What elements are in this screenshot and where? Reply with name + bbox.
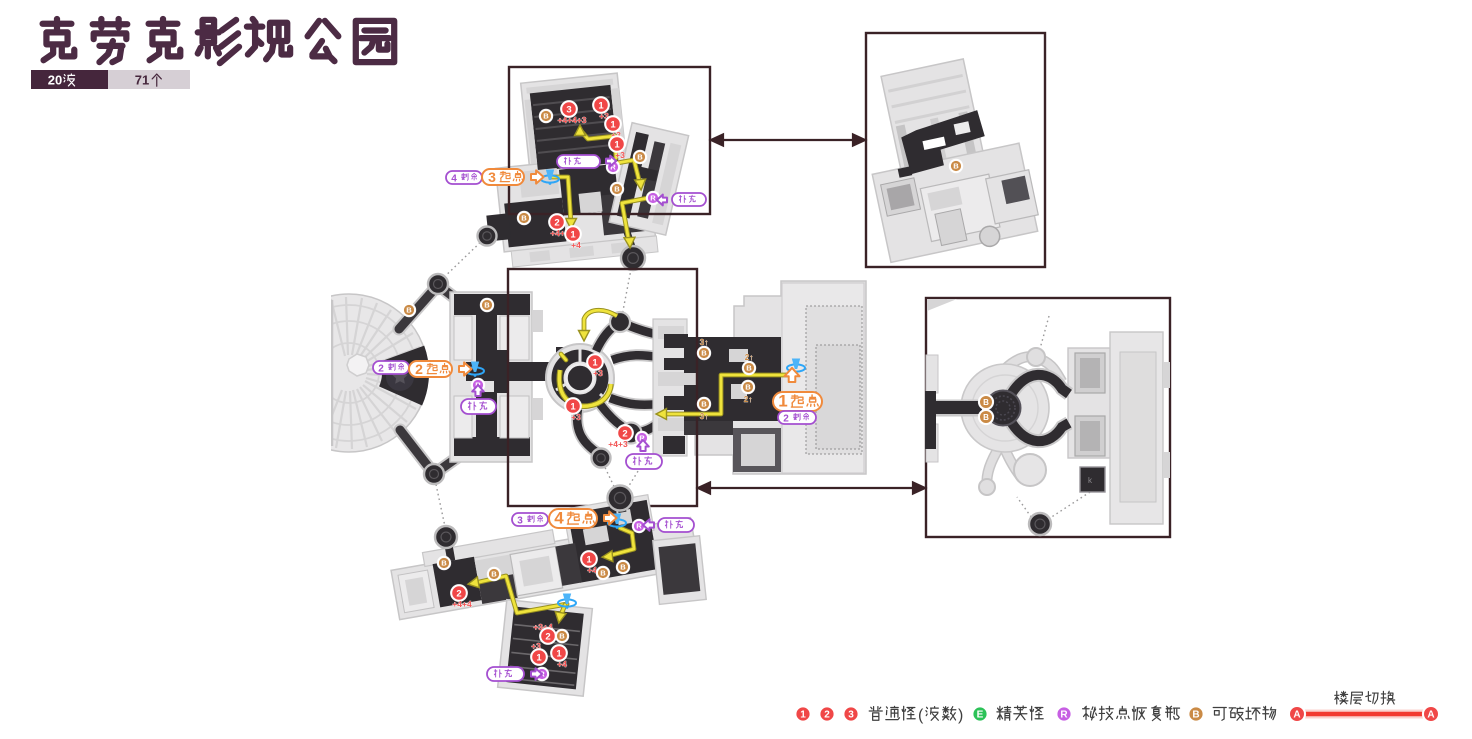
svg-text:1: 1 (570, 229, 576, 240)
svg-text:B: B (620, 563, 626, 572)
svg-text:1: 1 (556, 648, 562, 659)
svg-text:R: R (1060, 710, 1068, 721)
svg-text:A: A (1293, 710, 1300, 721)
svg-text:B: B (701, 400, 707, 409)
svg-text:B: B (484, 301, 490, 310)
svg-text:+4: +4 (557, 659, 567, 669)
svg-text:4: 4 (554, 509, 564, 528)
svg-text:3: 3 (488, 169, 496, 185)
svg-text:+4+4: +4+4 (452, 599, 472, 609)
svg-text:B: B (491, 570, 497, 579)
svg-text:+3: +3 (615, 150, 625, 160)
svg-text:R: R (650, 194, 656, 203)
svg-text:B: B (543, 112, 549, 121)
svg-text:4: 4 (451, 173, 457, 184)
svg-text:2: 2 (378, 363, 384, 374)
svg-text:B: B (701, 349, 707, 358)
svg-text:B: B (614, 185, 620, 194)
svg-text:2: 2 (622, 428, 627, 439)
svg-text:3: 3 (848, 710, 854, 721)
svg-text:R: R (636, 522, 642, 531)
svg-text:+4+4+3: +4+4+3 (557, 115, 586, 125)
svg-text:2: 2 (554, 217, 559, 228)
svg-text:+4+3: +4+3 (608, 439, 628, 449)
svg-text:1: 1 (598, 100, 604, 111)
svg-text:1: 1 (778, 392, 787, 411)
svg-text:+3: +3 (571, 412, 581, 422)
svg-text:B: B (559, 632, 565, 641)
svg-text:B: B (746, 364, 752, 373)
svg-text:2↑: 2↑ (745, 353, 753, 362)
svg-text:1: 1 (614, 139, 620, 150)
svg-text:2: 2 (783, 413, 789, 424)
svg-text:71: 71 (135, 73, 149, 88)
svg-text:B: B (745, 383, 751, 392)
svg-text:(: ( (918, 707, 924, 724)
svg-text:2: 2 (415, 361, 423, 377)
svg-text:2↑: 2↑ (744, 395, 752, 404)
svg-text:B: B (441, 559, 447, 568)
svg-text:1: 1 (570, 401, 576, 412)
svg-text:3: 3 (517, 515, 523, 526)
svg-text:2: 2 (545, 631, 550, 642)
svg-text:1: 1 (800, 710, 806, 721)
svg-text:1: 1 (536, 652, 542, 663)
svg-text:1: 1 (610, 119, 616, 130)
svg-text:B: B (637, 153, 643, 162)
svg-text:3↑: 3↑ (700, 412, 708, 421)
svg-text:3: 3 (566, 104, 571, 115)
svg-text:1: 1 (586, 554, 592, 565)
svg-text:E: E (977, 710, 984, 721)
svg-text:B: B (521, 214, 527, 223)
svg-text:3↑: 3↑ (700, 338, 708, 347)
svg-text:1: 1 (592, 357, 598, 368)
svg-text:A: A (1427, 710, 1434, 721)
svg-text:B: B (600, 569, 606, 578)
svg-text:+4: +4 (587, 565, 597, 575)
svg-text:20: 20 (48, 73, 62, 88)
svg-text:+4: +4 (571, 240, 581, 250)
svg-text:B: B (406, 306, 412, 315)
svg-text:B: B (983, 413, 989, 422)
svg-text:+3: +3 (593, 368, 603, 378)
svg-text:B: B (953, 162, 959, 171)
svg-text:B: B (983, 398, 989, 407)
svg-text:): ) (958, 707, 963, 724)
svg-text:B: B (1192, 710, 1199, 721)
svg-text:2: 2 (824, 710, 830, 721)
svg-text:2: 2 (456, 588, 461, 599)
